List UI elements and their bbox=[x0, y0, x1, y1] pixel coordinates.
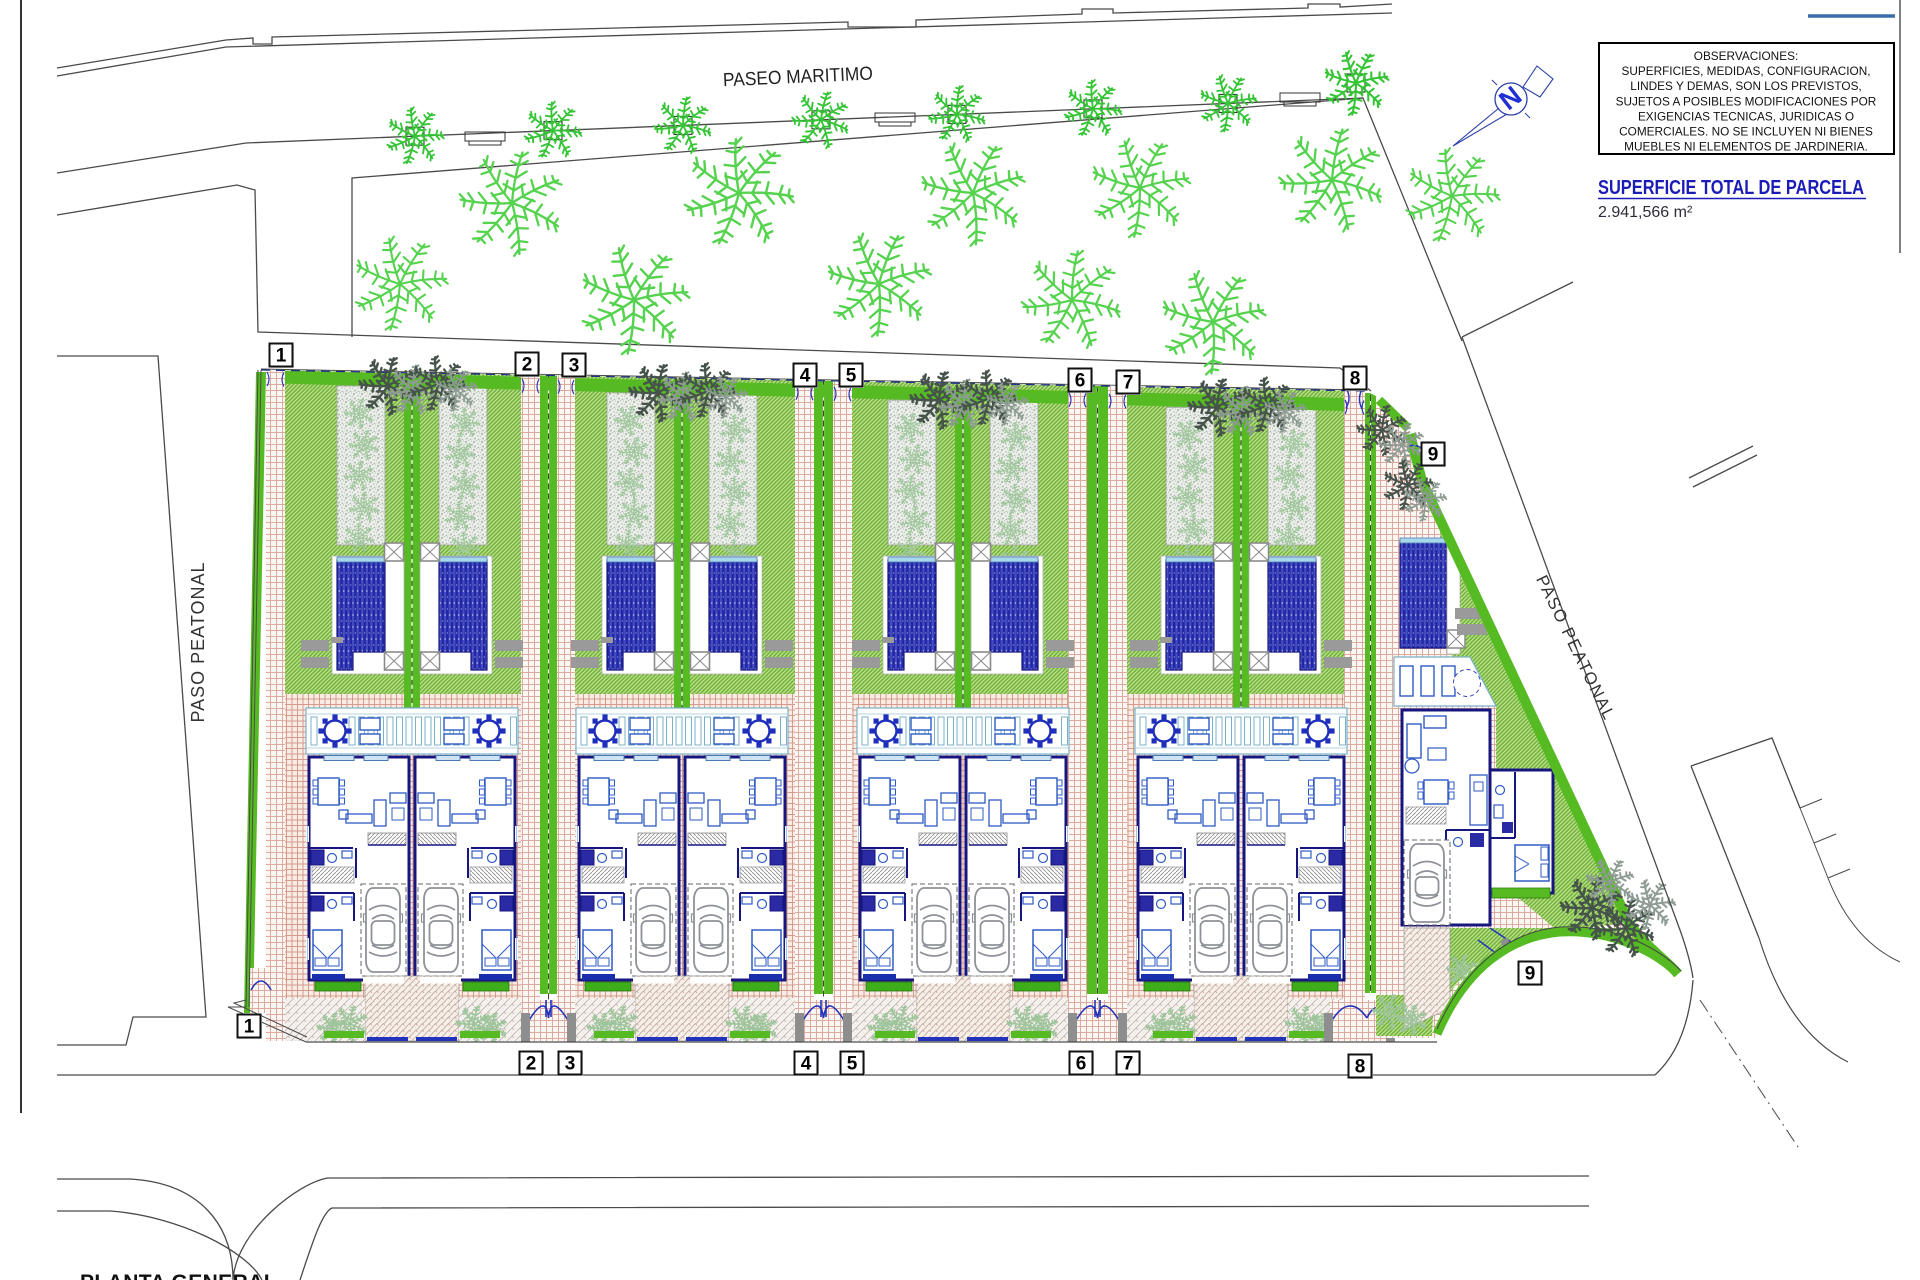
svg-text:2: 2 bbox=[526, 1054, 537, 1075]
svg-text:9: 9 bbox=[1428, 445, 1439, 466]
svg-text:SUJETOS A POSIBLES MODIFICACIO: SUJETOS A POSIBLES MODIFICACIONES POR bbox=[1616, 94, 1877, 108]
svg-text:PASO PEATONAL: PASO PEATONAL bbox=[188, 561, 208, 722]
svg-text:SUPERFICIE TOTAL DE PARCELA: SUPERFICIE TOTAL DE PARCELA bbox=[1598, 177, 1864, 199]
svg-text:PLANTA GENERAL: PLANTA GENERAL bbox=[80, 1271, 277, 1280]
svg-text:5: 5 bbox=[847, 1054, 858, 1075]
svg-text:5: 5 bbox=[846, 366, 857, 387]
svg-text:LINDES Y DEMAS, SON LOS PREVIS: LINDES Y DEMAS, SON LOS PREVISTOS, bbox=[1630, 79, 1861, 93]
svg-text:8: 8 bbox=[1350, 369, 1361, 390]
svg-text:3: 3 bbox=[565, 1054, 576, 1075]
svg-text:7: 7 bbox=[1123, 373, 1134, 394]
svg-text:9: 9 bbox=[1525, 964, 1536, 985]
svg-text:3: 3 bbox=[569, 356, 580, 377]
svg-text:MUEBLES NI ELEMENTOS DE JARDIN: MUEBLES NI ELEMENTOS DE JARDINERIA. bbox=[1624, 140, 1868, 154]
svg-text:4: 4 bbox=[800, 366, 811, 387]
svg-text:2.941,566 m²: 2.941,566 m² bbox=[1598, 204, 1693, 221]
svg-text:8: 8 bbox=[1355, 1057, 1366, 1078]
svg-text:2: 2 bbox=[522, 355, 533, 376]
svg-text:COMERCIALES. NO SE INCLUYEN NI: COMERCIALES. NO SE INCLUYEN NI BIENES bbox=[1619, 125, 1873, 139]
svg-text:1: 1 bbox=[276, 346, 287, 367]
svg-text:4: 4 bbox=[801, 1054, 812, 1075]
svg-text:6: 6 bbox=[1076, 1054, 1087, 1075]
svg-text:6: 6 bbox=[1075, 371, 1086, 392]
svg-text:OBSERVACIONES:: OBSERVACIONES: bbox=[1694, 49, 1798, 63]
svg-text:EXIGENCIAS TECNICAS, JURIDICAS: EXIGENCIAS TECNICAS, JURIDICAS O bbox=[1638, 109, 1854, 123]
svg-text:SUPERFICIES, MEDIDAS, CONFIGUR: SUPERFICIES, MEDIDAS, CONFIGURACION, bbox=[1621, 64, 1870, 78]
svg-text:1: 1 bbox=[244, 1017, 255, 1038]
svg-text:7: 7 bbox=[1123, 1054, 1134, 1075]
